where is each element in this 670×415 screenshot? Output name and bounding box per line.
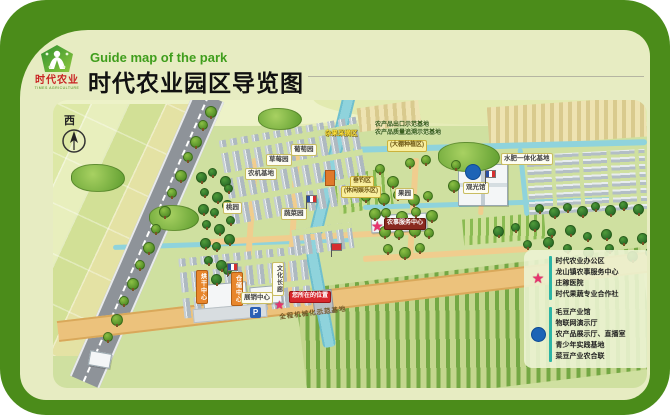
outer-frame: 时代农业 TIMES AGRICULTURE Guide map of the … [0, 0, 670, 415]
tree-icon [605, 205, 616, 216]
tree-icon [202, 220, 211, 229]
legend-item: 庄稼医院 [556, 278, 648, 289]
tree-icon [543, 237, 554, 248]
map-label: 杂果采摘区 [325, 130, 358, 138]
tree-icon [387, 176, 399, 188]
tree-icon [415, 243, 425, 253]
map-label: 农产品出口示范基地 [375, 122, 429, 130]
tree-icon [210, 208, 219, 217]
tree-icon [127, 278, 139, 290]
tree-icon [205, 106, 217, 118]
tree-icon [103, 332, 113, 342]
tree-icon [426, 210, 438, 222]
header-divider [308, 76, 644, 77]
tree-icon [583, 232, 592, 241]
card: 时代农业 TIMES AGRICULTURE Guide map of the … [20, 30, 650, 400]
tree-icon [224, 234, 235, 245]
tree-icon [224, 184, 233, 193]
tree-icon [448, 180, 460, 192]
tree-icon [523, 240, 532, 249]
logo-name-en: TIMES AGRICULTURE [28, 86, 86, 90]
map-label: 农事服务中心 [384, 218, 426, 230]
tree-icon [119, 296, 129, 306]
tree-icon [493, 226, 504, 237]
flag-icon [331, 243, 342, 251]
tree-icon [591, 202, 600, 211]
tree-icon [175, 170, 187, 182]
map-label: 农机基地 [245, 168, 277, 180]
tree-icon [151, 224, 161, 234]
times-agriculture-emblem [37, 44, 77, 76]
logo: 时代农业 TIMES AGRICULTURE [28, 44, 86, 102]
tree-icon [111, 314, 123, 326]
legend-item: 菜豆产业农合联 [556, 351, 648, 362]
header-subtitle: Guide map of the park [90, 50, 227, 65]
tree-cluster [258, 108, 302, 130]
tree-icon [204, 256, 213, 265]
tree-icon [208, 168, 217, 177]
tree-icon [549, 207, 560, 218]
tree-icon [198, 204, 209, 215]
tree-icon [511, 223, 520, 232]
map-label: (大棚种植区) [387, 140, 427, 152]
tree-icon [619, 236, 628, 245]
tree-icon [200, 238, 211, 249]
tree-icon [143, 242, 155, 254]
map-label: 农产品质量追溯示范基地 [375, 130, 441, 138]
legend-star-items: 时代农业办公区龙山镇农事服务中心庄稼医院时代果蔬专业合作社 [556, 256, 648, 300]
legend-panel: ★ 时代农业办公区龙山镇农事服务中心庄稼医院时代果蔬专业合作社 毛豆产业馆物联网… [524, 250, 647, 368]
map-label: (休闲娱乐区) [341, 186, 381, 198]
office-star-marker: ★ [371, 219, 384, 233]
visitor-hall-dot-marker [465, 164, 481, 180]
legend-dot-icon [531, 327, 546, 342]
legend-item: 青少年实践基地 [556, 340, 648, 351]
tree-icon [375, 164, 385, 174]
logo-name-cn: 时代农业 [28, 76, 86, 86]
map-label: 文化长廊 [272, 262, 284, 296]
tower [325, 170, 335, 186]
tree-icon [167, 188, 177, 198]
map-label: 展销中心 [241, 292, 273, 304]
parking-icon: P [250, 307, 261, 318]
map-label: 您所在的位置 [289, 291, 331, 303]
page-title: 时代农业园区导览图 [88, 64, 304, 98]
map-label: 烘干中心 [196, 270, 208, 304]
legend-item: 时代农业办公区 [556, 256, 648, 267]
tree-cluster [71, 164, 125, 192]
tree-icon [226, 216, 235, 225]
tree-icon [211, 274, 222, 285]
map-label: 果园 [395, 188, 414, 200]
legend-bar [549, 256, 552, 300]
tree-icon [200, 188, 209, 197]
legend-star-icon: ★ [532, 271, 545, 285]
tree-icon [383, 244, 393, 254]
tree-icon [601, 229, 612, 240]
tree-icon [399, 247, 411, 259]
tree-icon [196, 172, 207, 183]
legend-dot-group: 毛豆产业馆物联网演示厅农产品展示厅、直播室青少年实践基地菜豆产业农合联 [527, 307, 647, 362]
tree-icon [535, 204, 544, 213]
legend-item: 农产品展示厅、直播室 [556, 329, 648, 340]
tree-icon [637, 233, 647, 244]
tree-icon [190, 136, 202, 148]
tree-icon [394, 229, 404, 239]
tree-icon [411, 207, 421, 217]
legend-bar [549, 307, 552, 362]
tree-icon [633, 204, 644, 215]
tree-icon [212, 242, 221, 251]
tree-icon [381, 208, 391, 218]
flag-icon [485, 170, 496, 178]
tree-icon [424, 228, 434, 238]
tree-icon [563, 203, 572, 212]
tree-icon [183, 152, 193, 162]
tree-icon [451, 160, 461, 170]
greenhouse-block [291, 222, 354, 256]
flag-icon [306, 195, 317, 203]
map-label: 葡萄园 [291, 144, 317, 156]
you-are-here-star: ★ [274, 298, 285, 312]
legend-item: 龙山镇农事服务中心 [556, 267, 648, 278]
tree-icon [159, 206, 171, 218]
flag-icon [227, 263, 238, 271]
tree-icon [619, 201, 628, 210]
map-label: 草莓园 [266, 154, 292, 166]
tree-icon [135, 260, 145, 270]
map-label: 蔬菜园 [281, 208, 307, 220]
tree-icon [547, 228, 556, 237]
legend-dot-items: 毛豆产业馆物联网演示厅农产品展示厅、直播室青少年实践基地菜豆产业农合联 [556, 307, 648, 362]
tree-icon [405, 158, 415, 168]
legend-star-group: ★ 时代农业办公区龙山镇农事服务中心庄稼医院时代果蔬专业合作社 [527, 256, 647, 300]
map-label: 水肥一体化基地 [501, 153, 553, 165]
tree-icon [421, 155, 431, 165]
map-canvas: 杂果采摘区葡萄园草莓园农机基地桃园蔬菜园垂钓区(休闲娱乐区)农产品出口示范基地农… [53, 100, 647, 388]
tree-icon [565, 225, 576, 236]
legend-item: 毛豆产业馆 [556, 307, 648, 318]
tree-icon [529, 220, 540, 231]
tree-icon [423, 191, 433, 201]
legend-item: 物联网演示厅 [556, 318, 648, 329]
tree-icon [214, 224, 225, 235]
tree-icon [212, 192, 223, 203]
tree-icon [577, 206, 588, 217]
map-label: 桃园 [223, 202, 242, 214]
tree-icon [198, 120, 208, 130]
legend-item: 时代果蔬专业合作社 [556, 289, 648, 300]
